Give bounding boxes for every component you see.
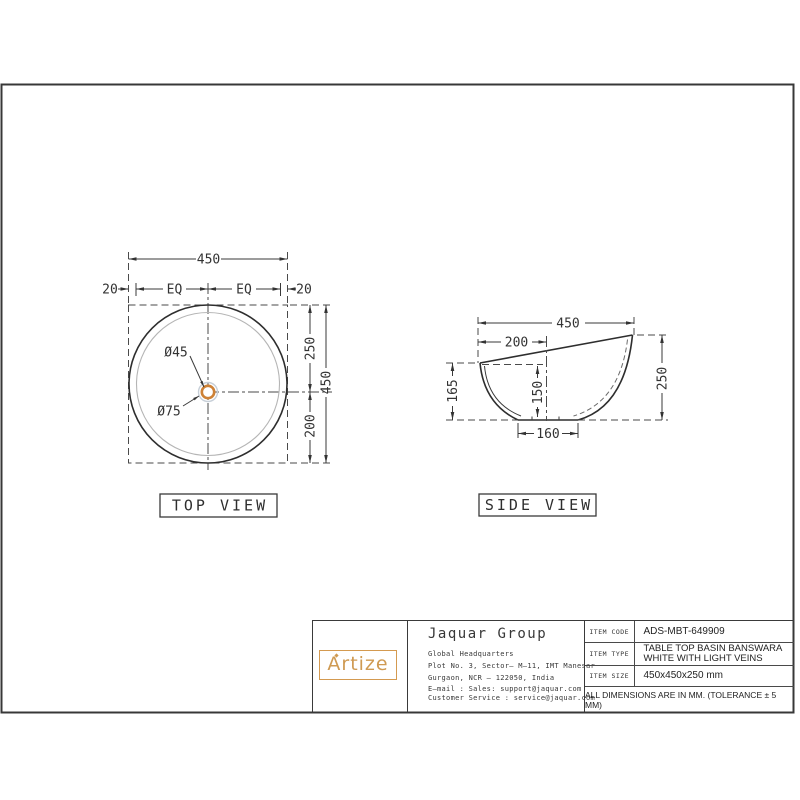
item-size-label: ITEM SIZE <box>585 666 635 686</box>
dim-side-height: 250 <box>656 335 671 420</box>
leader-drain-dia: Ø45 <box>164 346 204 388</box>
item-size-row: ITEM SIZE 450x450x250 mm <box>585 666 794 687</box>
svg-text:20: 20 <box>296 283 312 298</box>
company-info-cell: Jaquar Group Global Headquarters Plot No… <box>408 621 585 713</box>
leader-recess-dia: Ø75 <box>157 396 199 420</box>
dim-side-width: 450 <box>478 317 634 332</box>
dim-right-height: 450 <box>320 305 335 463</box>
svg-text:160: 160 <box>536 427 559 442</box>
svg-text:Ø75: Ø75 <box>157 405 180 420</box>
dim-eq-row: 20 EQ EQ 20 <box>102 283 312 298</box>
inner-wall-left <box>485 366 522 416</box>
company-address-2: Gurgaon, NCR – 122050, India <box>428 674 554 682</box>
svg-text:450: 450 <box>556 317 579 332</box>
svg-text:450: 450 <box>320 371 335 394</box>
svg-text:200: 200 <box>505 336 528 351</box>
rim-slant-line <box>480 335 633 363</box>
artize-logo: Artize <box>319 650 397 680</box>
item-type-value: TABLE TOP BASIN BANSWARA WHITE WITH LIGH… <box>635 643 794 665</box>
svg-text:250: 250 <box>656 367 671 390</box>
company-email: E–mail : Sales: support@jaquar.com <box>428 685 582 693</box>
brand-logo-cell: Artize <box>313 621 408 713</box>
side-view-label: SIDE VIEW <box>479 494 596 516</box>
item-code-row: ITEM CODE ADS-MBT-649909 <box>585 621 794 643</box>
side-view: 450 200 250 165 <box>446 317 671 517</box>
outer-wall-right <box>578 335 633 420</box>
title-block: Artize Jaquar Group Global Headquarters … <box>312 620 794 713</box>
dim-rim-offset: 200 <box>478 336 547 351</box>
sheet-border <box>2 85 794 713</box>
dim-left-height: 165 <box>446 363 461 420</box>
svg-text:EQ: EQ <box>167 283 183 298</box>
svg-text:150: 150 <box>531 381 546 404</box>
item-details-cell: ITEM CODE ADS-MBT-649909 ITEM TYPE TABLE… <box>585 621 794 713</box>
svg-text:165: 165 <box>446 379 461 402</box>
svg-text:SIDE VIEW: SIDE VIEW <box>485 496 593 514</box>
top-view-label: TOP VIEW <box>160 494 277 517</box>
svg-text:450: 450 <box>197 253 220 268</box>
tolerance-note: ALL DIMENSIONS ARE IN MM. (TOLERANCE ± 5… <box>585 687 794 713</box>
company-address-1: Plot No. 3, Sector– M–11, IMT Manesar <box>428 662 595 670</box>
company-customer-service: Customer Service : service@jaquar.com <box>428 694 595 702</box>
item-code-label: ITEM CODE <box>585 621 635 642</box>
svg-text:EQ: EQ <box>236 283 252 298</box>
company-hq: Global Headquarters <box>428 650 514 658</box>
svg-text:TOP VIEW: TOP VIEW <box>172 497 268 515</box>
dim-top-width: 450 <box>129 253 288 268</box>
svg-text:250: 250 <box>304 337 319 360</box>
top-view: 450 20 EQ EQ 20 <box>102 252 334 517</box>
item-code-value: ADS-MBT-649909 <box>635 621 794 642</box>
svg-text:200: 200 <box>304 414 319 437</box>
dim-250-200: 250 200 <box>304 305 319 463</box>
drawing-sheet: 450 20 EQ EQ 20 <box>0 0 800 800</box>
item-type-label: ITEM TYPE <box>585 643 635 665</box>
drain-hole-circle <box>202 386 214 398</box>
svg-text:Ø45: Ø45 <box>164 346 187 361</box>
dim-inner-depth: 150 <box>531 366 546 417</box>
item-type-row: ITEM TYPE TABLE TOP BASIN BANSWARA WHITE… <box>585 643 794 666</box>
inner-wall-right-hidden <box>574 340 628 417</box>
svg-text:20: 20 <box>102 283 118 298</box>
company-name: Jaquar Group <box>428 626 547 642</box>
dim-base-width: 160 <box>518 427 578 442</box>
item-size-value: 450x450x250 mm <box>635 666 794 686</box>
